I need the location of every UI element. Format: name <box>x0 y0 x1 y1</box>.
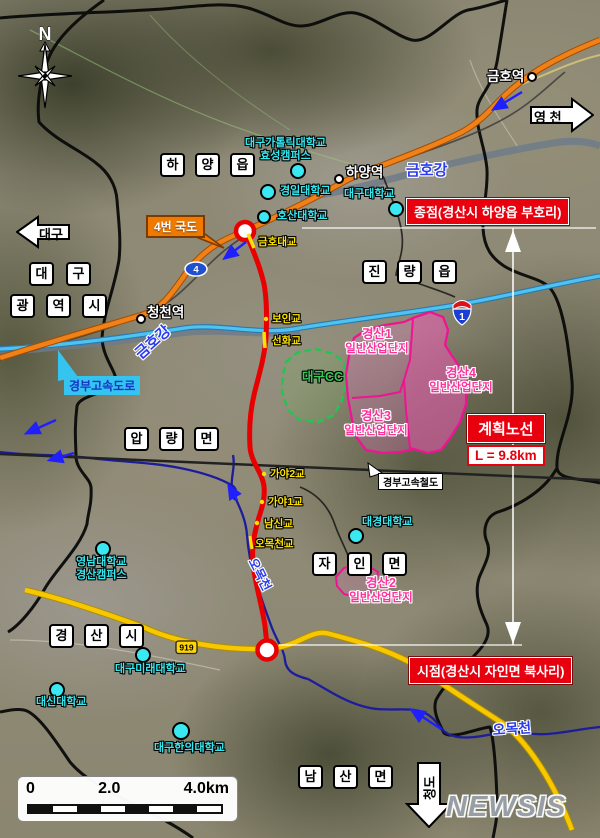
university-name: 대구미래대학교 <box>115 663 186 676</box>
district-char: 역 <box>46 294 71 318</box>
direction-arrow-cheongdo-label: 청도 <box>420 776 439 800</box>
flow-arrow <box>27 420 56 433</box>
university-label: 호산대학교 <box>277 210 328 223</box>
industrial-complex-type: 일반산업단지 <box>429 382 492 395</box>
industrial-complex-name: 경산2 <box>349 576 412 590</box>
district-char: 구 <box>66 262 91 286</box>
scale-bar: 0 2.0 4.0km <box>17 776 238 822</box>
route-4-shield: 4 <box>185 262 207 276</box>
university-dot <box>290 163 306 179</box>
university-dot <box>348 528 364 544</box>
industrial-complex-name: 경산3 <box>344 409 407 423</box>
university-name: 대구한의대학교 <box>154 742 225 755</box>
origin-label: 시점(경산시 자인면 북사리) <box>409 657 572 684</box>
scale-bar-segments <box>27 804 223 814</box>
svg-text:1: 1 <box>459 311 465 323</box>
river-label: 오목천 <box>492 719 532 738</box>
station-dot <box>527 72 537 82</box>
direction-arrow-daegu-label: 대구 <box>39 224 63 243</box>
station-dot <box>136 314 146 324</box>
satellite-route-map: 4 1 919 N 대구 영 천 청도 종점(경산시 하양읍 부호리) 시점(경… <box>0 0 600 838</box>
university-dot <box>95 541 111 557</box>
svg-text:4: 4 <box>193 265 199 276</box>
newsis-watermark: NEWSIS <box>446 791 566 824</box>
direction-arrow-yeongcheon: 영 천 <box>530 96 594 134</box>
district-label: 압량면 <box>124 427 219 451</box>
industrial-complex-type: 일반산업단지 <box>345 343 408 356</box>
university-name: 대경대학교 <box>362 516 413 529</box>
industrial-complex-label: 경산3일반산업단지 <box>344 409 407 439</box>
university-dot <box>257 210 271 224</box>
industrial-complex-label: 경산4일반산업단지 <box>429 366 492 396</box>
svg-text:919: 919 <box>179 643 193 653</box>
district-label: 경산시 <box>49 624 144 648</box>
district-char: 산 <box>333 765 358 789</box>
university-label: 대구가톨릭대학교효성캠퍼스 <box>245 137 326 162</box>
expressway-road-label: 경부고속도로 <box>64 376 140 395</box>
district-char: 시 <box>82 294 107 318</box>
university-name: 영남대학교 <box>76 556 127 569</box>
plan-route-box: 계획노선 L = 9.8km <box>467 414 545 466</box>
mountain-road <box>150 15 290 130</box>
university-label: 경일대학교 <box>280 185 331 198</box>
university-label: 대구미래대학교 <box>115 663 186 676</box>
district-label: 자인면 <box>312 552 407 576</box>
industrial-complex-label: 경산2일반산업단지 <box>349 576 412 606</box>
university-dot <box>172 722 190 740</box>
university-name: 호산대학교 <box>277 210 328 223</box>
industrial-complex-type: 일반산업단지 <box>349 592 412 605</box>
university-dot <box>260 184 276 200</box>
river-label: 금호강 <box>406 162 447 179</box>
bridge-label: 남신교 <box>264 518 293 530</box>
flow-arrow <box>225 242 246 258</box>
route4-road-label: 4번 국도 <box>146 215 205 238</box>
district-char: 하 <box>160 153 185 177</box>
direction-arrow-yeongcheon-label: 영 천 <box>534 107 562 126</box>
district-label: 대구 <box>29 262 91 286</box>
terminus-label: 종점(경산시 하양읍 부호리) <box>406 198 569 225</box>
expressway-1-shield: 1 <box>453 301 471 326</box>
university-name: 대구가톨릭대학교 <box>245 137 326 150</box>
university-name: 대구대학교 <box>344 188 395 201</box>
university-name-line2: 경산캠퍼스 <box>76 569 127 582</box>
district-char: 경 <box>49 624 74 648</box>
district-char: 면 <box>382 552 407 576</box>
university-label: 대구대학교 <box>344 188 395 201</box>
university-name-line2: 효성캠퍼스 <box>245 150 326 163</box>
district-label: 진량읍 <box>362 260 457 284</box>
daegu-cc-label: 대구CC <box>302 370 343 384</box>
district-char: 압 <box>124 427 149 451</box>
district-char: 인 <box>347 552 372 576</box>
scale-tick-0: 0 <box>26 780 35 798</box>
daegu-cc-area <box>282 349 346 422</box>
ktx-rail-label: 경부고속철도 <box>378 473 443 490</box>
university-name: 대신대학교 <box>36 696 87 709</box>
industrial-complex-label: 경산1일반산업단지 <box>345 327 408 357</box>
district-char: 면 <box>194 427 219 451</box>
university-label: 영남대학교경산캠퍼스 <box>76 556 127 581</box>
university-label: 대경대학교 <box>362 516 413 529</box>
university-name: 경일대학교 <box>280 185 331 198</box>
district-char: 자 <box>312 552 337 576</box>
bridge-label: 선화교 <box>272 335 301 347</box>
district-char: 양 <box>195 153 220 177</box>
dimension-arrow-down <box>505 622 521 644</box>
district-char: 량 <box>397 260 422 284</box>
university-label: 대구한의대학교 <box>154 742 225 755</box>
bridge-label: 가야1교 <box>268 496 303 508</box>
district-label: 하양읍 <box>160 153 255 177</box>
district-label: 광역시 <box>10 294 107 318</box>
bridge-label: 오목천교 <box>255 538 294 550</box>
station-dot <box>334 174 344 184</box>
dimension-arrow-up <box>505 230 521 252</box>
industrial-complex-name: 경산4 <box>429 366 492 380</box>
plan-route-length: L = 9.8km <box>467 445 545 466</box>
direction-arrow-daegu: 대구 <box>16 214 70 250</box>
university-label: 대신대학교 <box>36 696 87 709</box>
district-char: 남 <box>298 765 323 789</box>
bridge-label: 가야2교 <box>270 468 305 480</box>
university-dot <box>135 647 151 663</box>
district-char: 시 <box>119 624 144 648</box>
district-char: 산 <box>84 624 109 648</box>
industrial-complex-name: 경산1 <box>345 327 408 341</box>
university-dot <box>388 201 404 217</box>
scale-tick-max: 4.0km <box>184 780 229 798</box>
station-label: 하양역 <box>346 165 383 181</box>
district-char: 광 <box>10 294 35 318</box>
route-origin-circle <box>258 641 277 660</box>
station-label: 금호역 <box>487 69 524 85</box>
bridge-label: 금호대교 <box>258 236 297 248</box>
industrial-complex-type: 일반산업단지 <box>344 425 407 438</box>
scale-tick-mid: 2.0 <box>98 780 120 798</box>
district-char: 량 <box>159 427 184 451</box>
district-char: 진 <box>362 260 387 284</box>
district-label: 남산면 <box>298 765 393 789</box>
district-char: 대 <box>29 262 54 286</box>
route-919-shield: 919 <box>176 641 197 654</box>
station-label: 청천역 <box>147 305 184 321</box>
district-char: 면 <box>368 765 393 789</box>
district-char: 읍 <box>432 260 457 284</box>
bridge-label: 보인교 <box>272 313 301 325</box>
plan-route-title: 계획노선 <box>467 414 545 443</box>
